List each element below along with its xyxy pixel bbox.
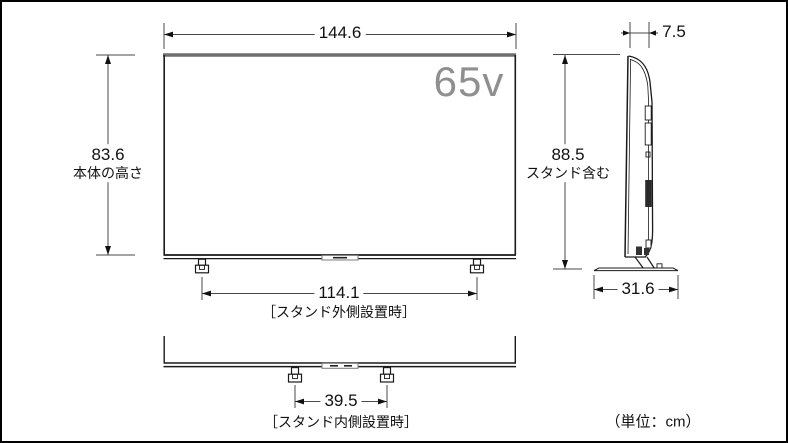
- screen-size-label: 65v: [434, 58, 505, 106]
- tv-bottom-view: [164, 336, 517, 382]
- front-right-foot: [471, 259, 484, 273]
- unit-note: （単位：cm）: [606, 413, 701, 430]
- height-with-stand-value: 88.5: [526, 145, 610, 165]
- bottom-left-foot: [289, 368, 302, 382]
- dim-depth: [621, 22, 658, 48]
- height-with-stand-label: スタンド含む: [526, 165, 610, 181]
- bottom-right-foot: [381, 368, 394, 382]
- side-depth-value: 7.5: [658, 22, 690, 42]
- front-height-dimension: 83.6 本体の高さ: [70, 144, 146, 182]
- height-with-stand-dimension: 88.5 スタンド含む: [523, 144, 613, 182]
- front-height-value: 83.6: [73, 145, 143, 165]
- side-rear-details: [636, 106, 652, 255]
- stand-outer-width-value: 114.1: [314, 283, 363, 303]
- front-height-label: 本体の高さ: [73, 165, 143, 181]
- front-left-foot: [196, 259, 209, 273]
- stand-inner-width-label: ［スタンド内側設置時］: [264, 414, 418, 430]
- stand-inner-width-value: 39.5: [320, 391, 361, 411]
- side-stand-neck: [635, 257, 655, 269]
- front-center-module: [322, 255, 358, 260]
- tv-dimensions-diagram: 144.6 83.6 本体の高さ 114.1 ［スタンド外側設置時］ 39.5 …: [0, 0, 788, 443]
- side-stand-base: [594, 264, 678, 271]
- stand-base-depth-value: 31.6: [617, 279, 658, 299]
- diagram-linework: [2, 2, 786, 441]
- front-width-value: 144.6: [315, 23, 366, 43]
- stand-outer-width-label: ［スタンド外側設置時］: [262, 304, 416, 320]
- bottom-center-module: [322, 363, 358, 368]
